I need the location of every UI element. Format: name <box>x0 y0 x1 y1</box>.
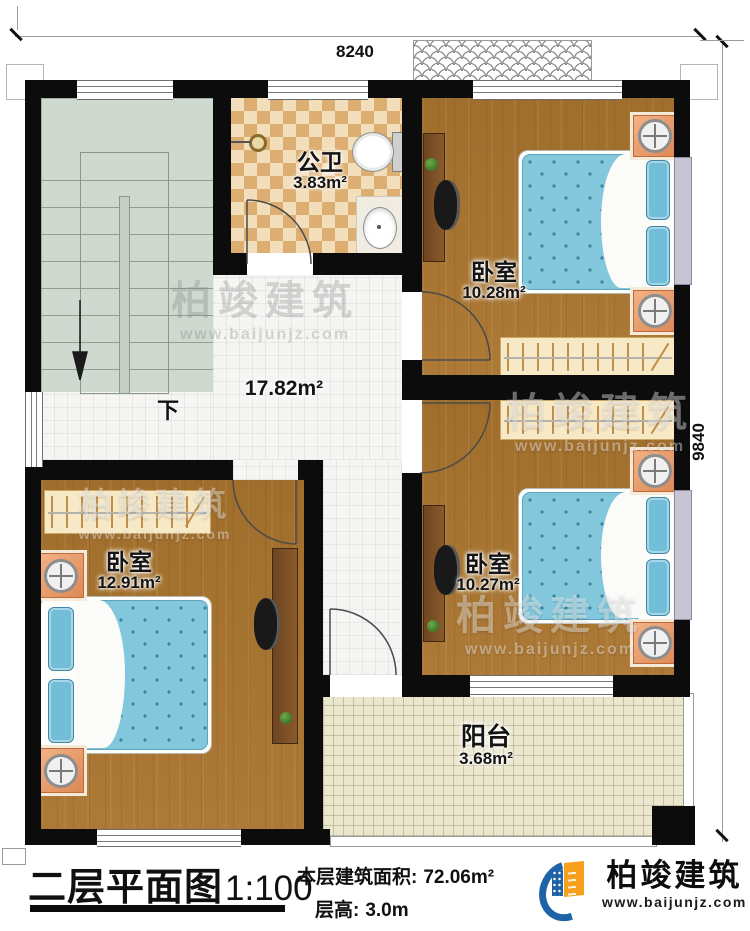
doorway-floor <box>233 460 304 480</box>
bed <box>518 150 676 294</box>
nightstand <box>633 622 677 664</box>
dimension-tick <box>9 28 22 41</box>
bed-pillow <box>646 497 670 554</box>
roof-shingles <box>413 40 592 84</box>
hallway-corridor-floor <box>323 460 402 675</box>
brand-name: 柏竣建筑 <box>606 860 742 891</box>
lamp-icon <box>638 626 672 660</box>
floor-area-row: 本层建筑面积: 72.06m² <box>297 862 494 889</box>
hallway-floor <box>41 392 213 460</box>
nightstand <box>38 748 84 793</box>
nightstand <box>633 450 677 492</box>
dimension-text-top: 8240 <box>336 42 374 62</box>
room-area: 3.83m² <box>293 174 347 192</box>
lamp-icon <box>44 559 78 593</box>
room-label-bedroom-middle-right: 卧室 10.27m² <box>456 552 519 594</box>
bed <box>40 596 212 754</box>
window <box>470 675 613 695</box>
wall-segment <box>402 473 422 697</box>
brand-logo: 柏竣建筑 www.baijunjz.com <box>540 856 747 914</box>
wall-segment <box>323 675 330 697</box>
wall-segment <box>402 80 422 292</box>
wall-segment <box>613 675 690 697</box>
wall-segment <box>213 253 247 275</box>
lamp-icon <box>638 454 672 488</box>
brand-url: www.baijunjz.com <box>602 894 747 910</box>
nightstand <box>633 290 677 332</box>
room-area: 10.28m² <box>462 284 525 302</box>
sink-counter <box>356 196 404 255</box>
wall-segment <box>674 283 690 490</box>
room-label-balcony: 阳台 3.68m² <box>459 724 513 768</box>
room-label-hallway: 17.82m² <box>245 378 323 400</box>
room-label-bedroom-top-right: 卧室 10.28m² <box>462 260 525 302</box>
wardrobe <box>44 490 211 534</box>
room-area: 12.91m² <box>97 574 160 592</box>
room-name: 卧室 <box>456 552 519 576</box>
bed-pillow <box>646 160 670 220</box>
wall-segment <box>422 675 470 697</box>
sheet-title: 二层平面图 <box>28 856 223 911</box>
bed <box>518 488 676 624</box>
dimension-line-right <box>722 42 723 842</box>
room-area: 3.68m² <box>459 750 513 768</box>
wall-segment <box>298 460 323 480</box>
dimension-extension-line <box>17 6 18 30</box>
room-area: 10.27m² <box>456 576 519 594</box>
room-name: 卧室 <box>462 260 525 284</box>
floor-plan-sheet: 公卫 3.83m² 卧室 10.28m² 17.82m² 卧室 12.91m² … <box>0 0 750 931</box>
wall-segment <box>674 80 690 157</box>
wall-segment <box>213 80 231 275</box>
floor-height-label: 层高: <box>315 895 359 922</box>
floor-height-value: 3.0m <box>365 900 408 922</box>
wall-segment <box>422 375 674 400</box>
floor-area-value: 72.06m² <box>423 867 494 889</box>
room-name: 卧室 <box>97 550 160 574</box>
floor-height-row: 层高: 3.0m <box>315 895 409 922</box>
window <box>77 80 173 100</box>
nightstand <box>38 553 84 598</box>
lamp-icon <box>638 294 672 328</box>
chair <box>254 598 280 650</box>
wall-segment <box>304 480 323 829</box>
lamp-icon <box>44 754 78 788</box>
wall-segment <box>25 467 41 845</box>
shower-arm <box>231 141 251 143</box>
wardrobe <box>500 400 676 440</box>
title-underline <box>30 905 285 912</box>
room-name: 阳台 <box>459 724 513 750</box>
wall-segment <box>313 253 402 275</box>
bed-pillow <box>48 679 74 743</box>
wall-segment <box>241 829 330 845</box>
window <box>674 490 692 620</box>
plant <box>425 158 438 171</box>
toilet-icon <box>352 132 394 172</box>
room-name: 公卫 <box>293 150 347 174</box>
bed-sheet-fold <box>601 492 646 618</box>
balcony-railing <box>330 836 657 847</box>
hallway-floor <box>213 275 402 460</box>
room-label-bedroom-bottom-left: 卧室 12.91m² <box>97 550 160 592</box>
shower-head-icon <box>249 134 267 152</box>
chair <box>434 180 460 230</box>
balcony-corner-column <box>652 806 695 845</box>
window <box>674 157 692 285</box>
wardrobe <box>500 337 676 377</box>
brand-logo-icon <box>540 856 594 914</box>
margin-mark <box>2 848 26 865</box>
room-label-bathroom: 公卫 3.83m² <box>293 150 347 192</box>
plant <box>427 620 439 632</box>
room-area: 17.82m² <box>245 378 323 400</box>
bed-pillow <box>48 607 74 671</box>
dimension-extension-line <box>700 40 744 41</box>
wall-segment <box>25 829 97 845</box>
wall-segment <box>25 460 233 480</box>
bed-pillow <box>646 559 670 616</box>
window <box>97 829 241 847</box>
dimension-line-top <box>15 36 700 37</box>
lamp-icon <box>638 119 672 153</box>
wall-segment <box>25 80 41 392</box>
sheet-title-row: 二层平面图 1:100 <box>28 856 313 911</box>
nightstand <box>633 115 677 157</box>
window <box>473 80 622 100</box>
wall-segment <box>402 360 422 400</box>
staircase-divider <box>119 196 130 394</box>
stair-down-label: 下 <box>157 393 179 425</box>
plant <box>280 712 292 724</box>
dimension-text-right: 9840 <box>689 423 709 461</box>
window <box>268 80 368 100</box>
floor-area-label: 本层建筑面积: <box>297 862 417 889</box>
bed-sheet-fold <box>601 154 646 288</box>
bed-pillow <box>646 226 670 286</box>
window <box>25 392 43 467</box>
